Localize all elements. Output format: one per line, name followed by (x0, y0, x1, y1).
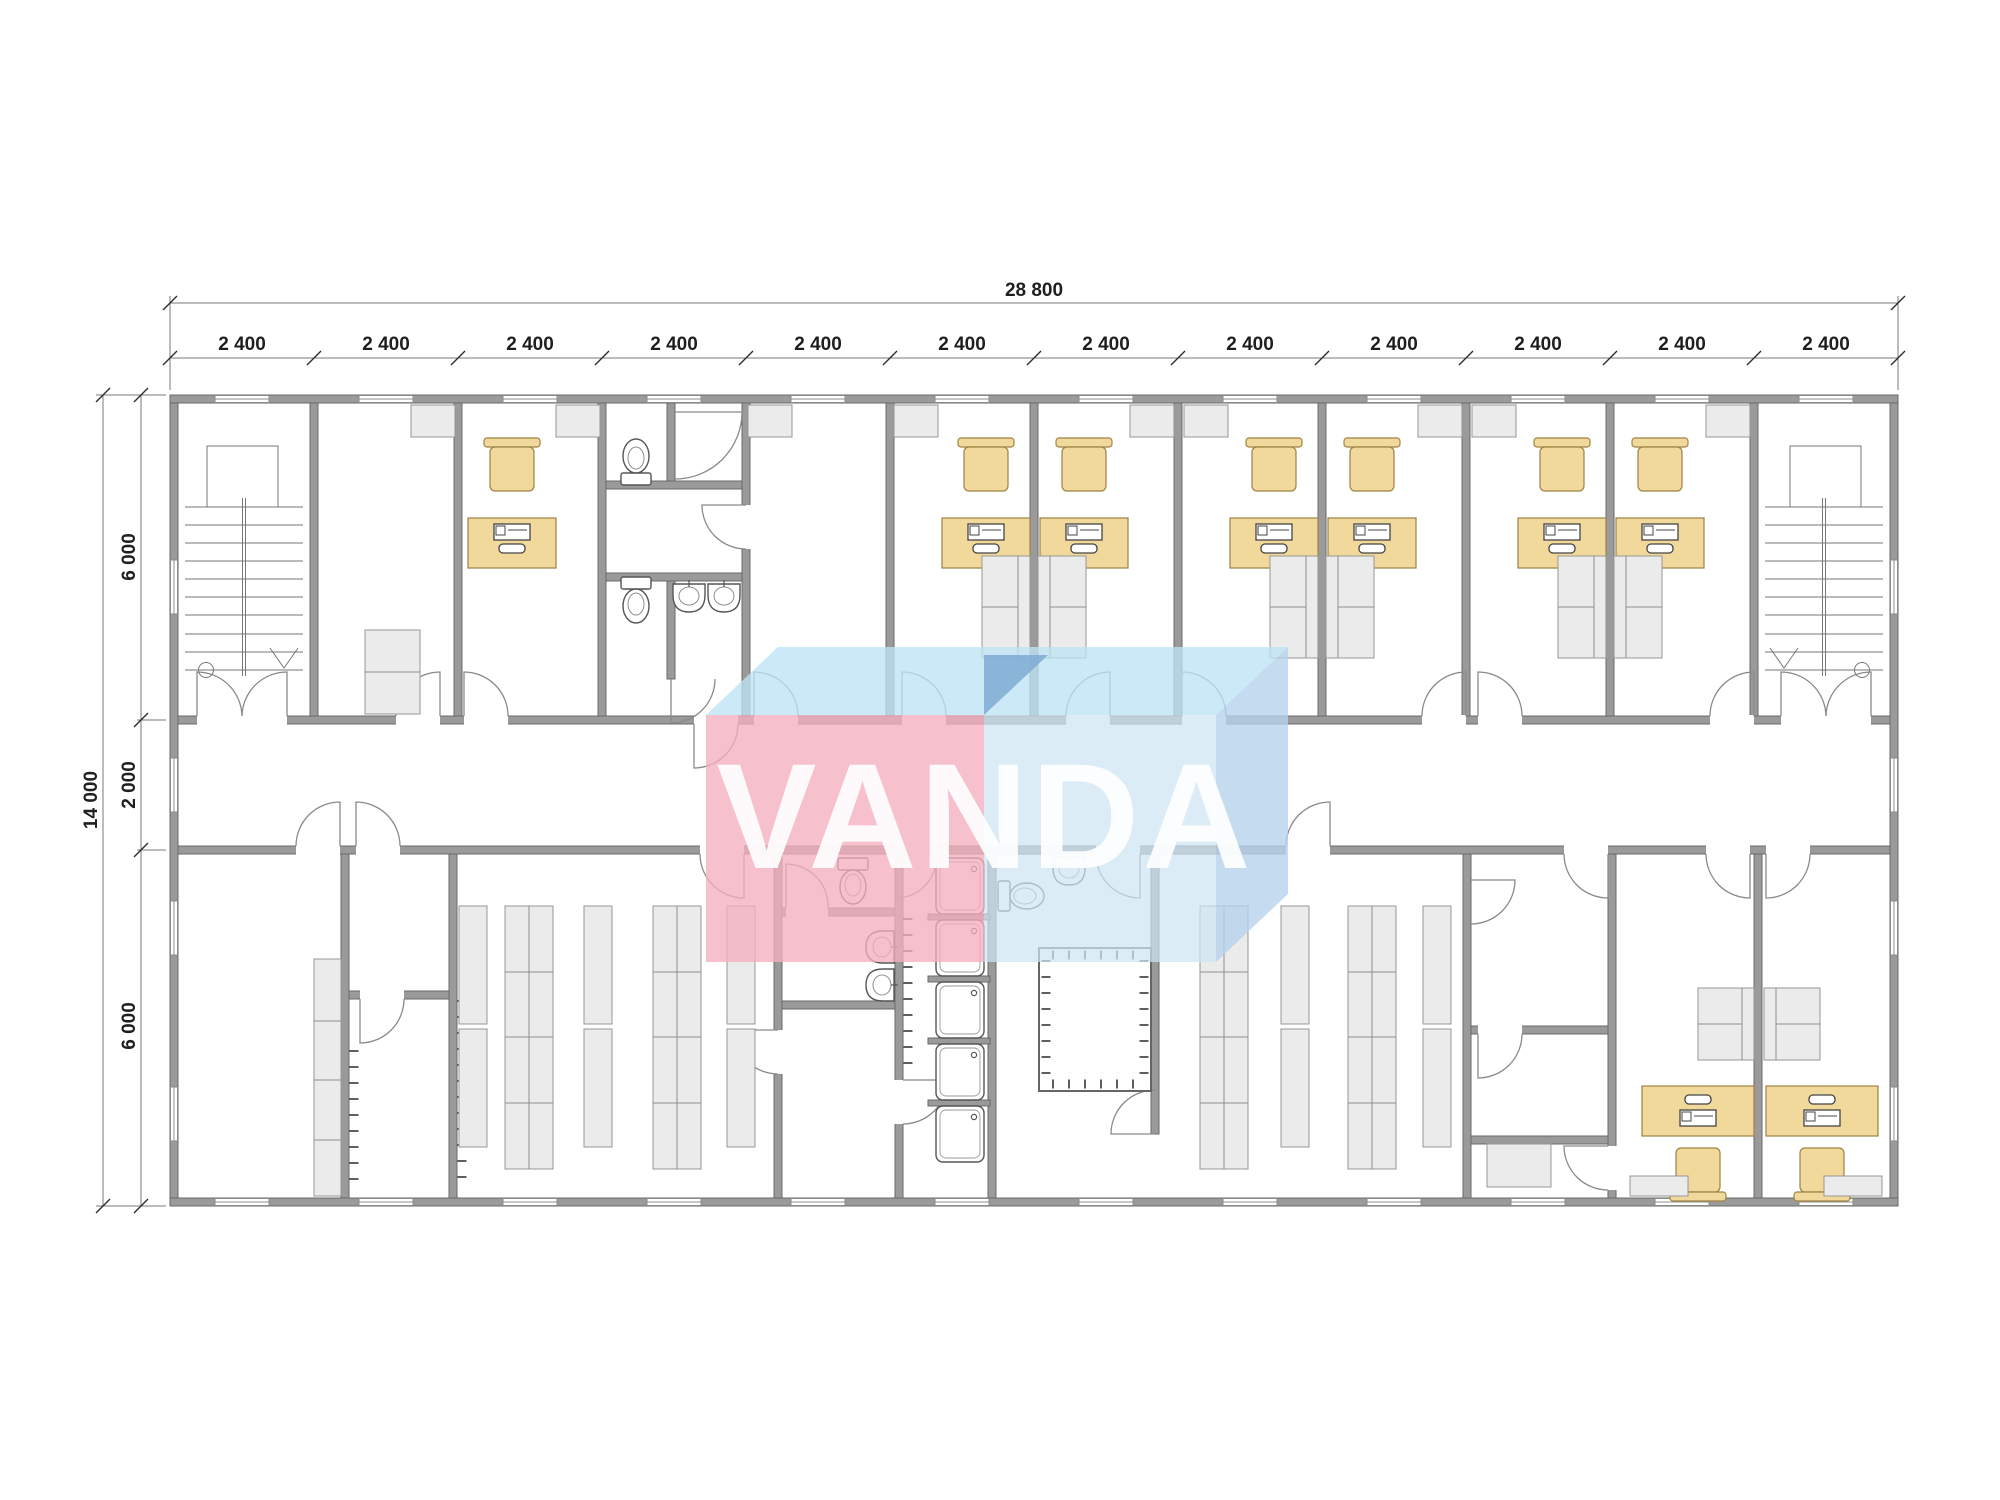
stairwell-right (1765, 446, 1883, 678)
width-segment-label: 2 400 (506, 334, 554, 355)
shower-icon (936, 1044, 984, 1100)
vanda-watermark: VANDA (706, 647, 1288, 962)
floor-plan-drawing: 28 800 2 4002 4002 4002 4002 4002 4002 4… (0, 0, 2000, 1500)
office-desks (468, 438, 1704, 568)
shower-icon (936, 1106, 984, 1162)
overall-height-label: 14 000 (81, 771, 102, 829)
width-segment-label: 2 400 (1082, 334, 1130, 355)
width-segment-label: 2 400 (1658, 334, 1706, 355)
width-segment-label: 2 400 (218, 334, 266, 355)
width-segment-label: 2 400 (938, 334, 986, 355)
stairwell-left (185, 446, 303, 678)
width-segment-label: 2 400 (1802, 334, 1850, 355)
utility-rooms-right (1487, 1144, 1551, 1187)
width-segment-label: 2 400 (650, 334, 698, 355)
storage-racks-right (1200, 906, 1451, 1169)
toilet-icon (621, 577, 651, 623)
height-segment-label-middle: 2 000 (119, 761, 140, 809)
shower-icon (936, 982, 984, 1038)
watermark-text: VANDA (716, 732, 1253, 900)
width-segment-label: 2 400 (1514, 334, 1562, 355)
hatched-room (1039, 948, 1151, 1091)
sink-icon (673, 580, 705, 612)
width-segment-labels: 2 4002 4002 4002 4002 4002 4002 4002 400… (218, 334, 1850, 355)
floor-plan-page: 28 800 2 4002 4002 4002 4002 4002 4002 4… (0, 0, 2000, 1500)
width-segment-label: 2 400 (362, 334, 410, 355)
width-segment-label: 2 400 (794, 334, 842, 355)
height-segment-label-top: 6 000 (119, 533, 140, 581)
toilet-icon (621, 439, 651, 485)
width-segment-label: 2 400 (1370, 334, 1418, 355)
sink-icon (866, 969, 898, 1001)
sink-icon (708, 580, 740, 612)
width-segment-label: 2 400 (1226, 334, 1274, 355)
overall-width-label: 28 800 (1005, 280, 1063, 301)
height-segment-label-bottom: 6 000 (119, 1002, 140, 1050)
wc-top-fixtures (621, 439, 740, 623)
